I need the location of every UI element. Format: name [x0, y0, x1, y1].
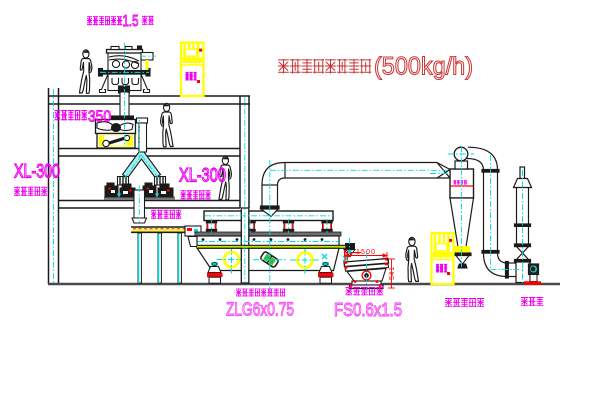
svg-text:350: 350 [88, 109, 111, 126]
svg-text:541: 541 [389, 267, 396, 280]
svg-text:XL-300: XL-300 [179, 165, 226, 187]
svg-text:FS0.6x1.5: FS0.6x1.5 [334, 299, 402, 320]
svg-text:1.5: 1.5 [123, 13, 139, 30]
svg-text:1500: 1500 [356, 249, 375, 256]
svg-text:ZLG6x0.75: ZLG6x0.75 [226, 299, 294, 320]
svg-text:(500kg/h): (500kg/h) [374, 53, 473, 81]
svg-text:XL-300: XL-300 [14, 161, 60, 183]
